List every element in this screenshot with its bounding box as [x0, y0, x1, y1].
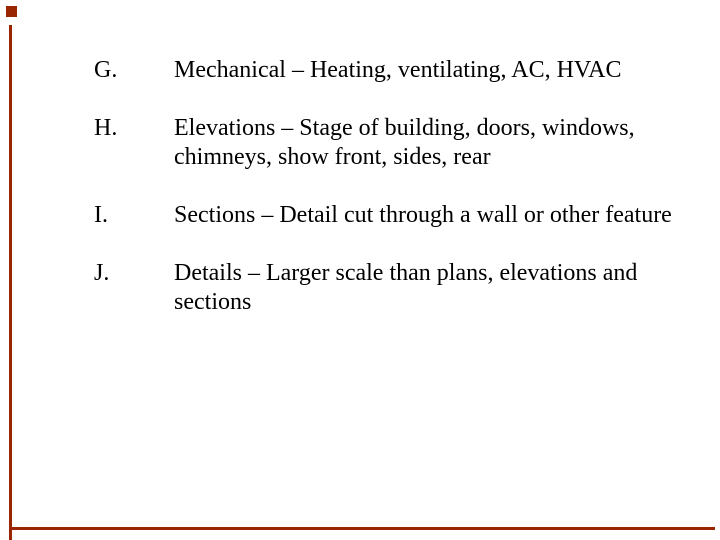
list-item-text: Elevations – Stage of building, doors, w…	[174, 114, 720, 172]
bottom-edge-line-decoration	[9, 527, 715, 530]
list-item-i: I. Sections – Detail cut through a wall …	[0, 201, 720, 230]
list-item-label: J.	[94, 259, 174, 288]
list-item-line: Elevations – Stage of building, doors, w…	[174, 114, 720, 143]
list-item-label: G.	[94, 56, 174, 85]
list-item-label: H.	[94, 114, 174, 143]
list-item-text: Mechanical – Heating, ventilating, AC, H…	[174, 56, 720, 85]
slide: G. Mechanical – Heating, ventilating, AC…	[0, 0, 720, 540]
list-item-text: Sections – Detail cut through a wall or …	[174, 201, 720, 230]
list-item-g: G. Mechanical – Heating, ventilating, AC…	[0, 56, 720, 85]
list-item-line: chimneys, show front, sides, rear	[174, 143, 720, 172]
list-item-j: J. Details – Larger scale than plans, el…	[0, 259, 720, 317]
list-item-h: H. Elevations – Stage of building, doors…	[0, 114, 720, 172]
list-item-line: sections	[174, 288, 720, 317]
list-item-line: Mechanical – Heating, ventilating, AC, H…	[174, 56, 720, 85]
outline-list: G. Mechanical – Heating, ventilating, AC…	[0, 0, 720, 346]
list-item-text: Details – Larger scale than plans, eleva…	[174, 259, 720, 317]
list-item-label: I.	[94, 201, 174, 230]
list-item-line: Sections – Detail cut through a wall or …	[174, 201, 720, 230]
list-item-line: Details – Larger scale than plans, eleva…	[174, 259, 720, 288]
